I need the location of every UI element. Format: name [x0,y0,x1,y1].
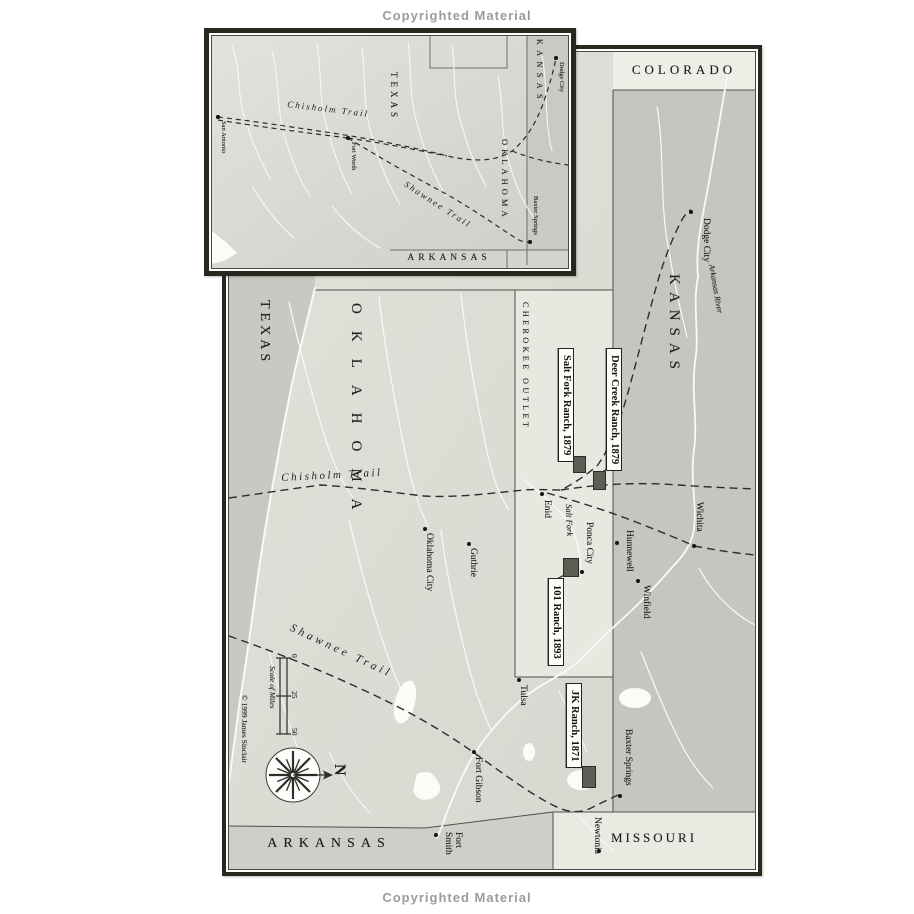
city-label-fort-smith: Fort Smith [442,832,462,858]
inset-city-dot-baxter-springs [528,240,532,244]
region-label-cherokee-outlet: CHEROKEE OUTLET [521,302,529,430]
ranch-label-jk: JK Ranch, 1871 [566,683,582,768]
compass-north-label: N [330,764,347,776]
scale-tick-25: 25 [290,691,298,699]
inset-state-label-texas: TEXAS [389,72,398,121]
state-label-texas: TEXAS [256,300,271,365]
city-label-wichita: Wichita [693,502,703,532]
copyright-banner-bottom: Copyrighted Material [0,890,914,905]
city-dot-enid [540,492,544,496]
inset-map-artwork [212,36,568,268]
city-dot-fort-smith [434,833,438,837]
city-dot-guthrie [467,542,471,546]
inset-city-dot-san-antonio [216,115,220,119]
state-label-colorado: COLORADO [613,62,755,78]
ranch-label-101: 101 Ranch, 1893 [548,578,564,666]
city-label-guthrie: Guthrie [467,548,477,577]
city-label-oklahoma-city: Oklahoma City [423,533,433,591]
copyright-banner-top: Copyrighted Material [0,8,914,23]
state-label-arkansas: ARKANSAS [229,836,429,852]
inset-city-dot-dodge-city [554,56,558,60]
ranch-label-salt-fork: Salt Fork Ranch, 1879 [558,348,574,462]
city-dot-winfield [636,579,640,583]
city-label-winfield: Winfield [640,585,650,618]
city-label-newtonia: Newtonia [591,817,601,854]
city-label-ponca-city: Ponca City [583,522,593,564]
inset-map: TEXAS KANSAS OKLAHOMA ARKANSAS Chisholm … [211,35,569,269]
city-dot-baxter-springs [618,794,622,798]
inset-city-label-fort-worth: Fort Worth [349,142,356,170]
inset-map-frame: TEXAS KANSAS OKLAHOMA ARKANSAS Chisholm … [204,28,576,276]
city-dot-tulsa [517,678,521,682]
ranch-marker-salt-fork [573,456,586,473]
ranch-label-deer-creek: Deer Creek Ranch, 1879 [606,348,622,471]
city-label-enid: Enid [541,500,551,518]
city-dot-dodge-city [689,210,693,214]
salt-fork-river-label: Salt Fork [564,504,574,536]
city-dot-wichita [692,544,696,548]
city-dot-ponca-city [580,570,584,574]
ranch-marker-101 [563,558,579,577]
scale-tick-50: 50 [290,728,298,736]
inset-state-label-arkansas: ARKANSAS [390,253,508,263]
scale-title: Scale of Miles [268,666,276,709]
city-label-hunnewell: Hunnewell [623,530,633,572]
city-label-fort-gibson: Fort Gibson [472,757,482,803]
map-credit: © 1999 James Sinclair [240,695,248,763]
city-label-tulsa: Tulsa [517,685,527,706]
inset-state-label-kansas: KANSAS [535,39,543,104]
state-label-oklahoma: OKLAHOMA [347,303,363,527]
city-dot-fort-gibson [472,750,476,754]
inset-city-label-dodge-city: Dodge City [557,62,564,92]
city-dot-hunnewell [615,541,619,545]
scanned-map-page: Copyrighted Material [0,0,914,914]
city-dot-oklahoma-city [423,527,427,531]
ranch-marker-deer-creek [593,471,606,490]
inset-city-dot-fort-worth [346,136,350,140]
city-label-dodge-city: Dodge City [700,218,710,262]
inset-city-label-san-antonio: San Antonio [219,121,226,153]
city-label-baxter-springs: Baxter Springs [622,729,632,786]
state-label-kansas: KANSAS [665,274,681,376]
inset-state-label-oklahoma: OKLAHOMA [500,139,509,221]
state-label-missouri: MISSOURI [553,830,755,846]
inset-city-label-baxter-springs: Baxter Springs [531,196,538,235]
scale-tick-0: 0 [290,654,298,658]
ranch-marker-jk [582,766,596,788]
